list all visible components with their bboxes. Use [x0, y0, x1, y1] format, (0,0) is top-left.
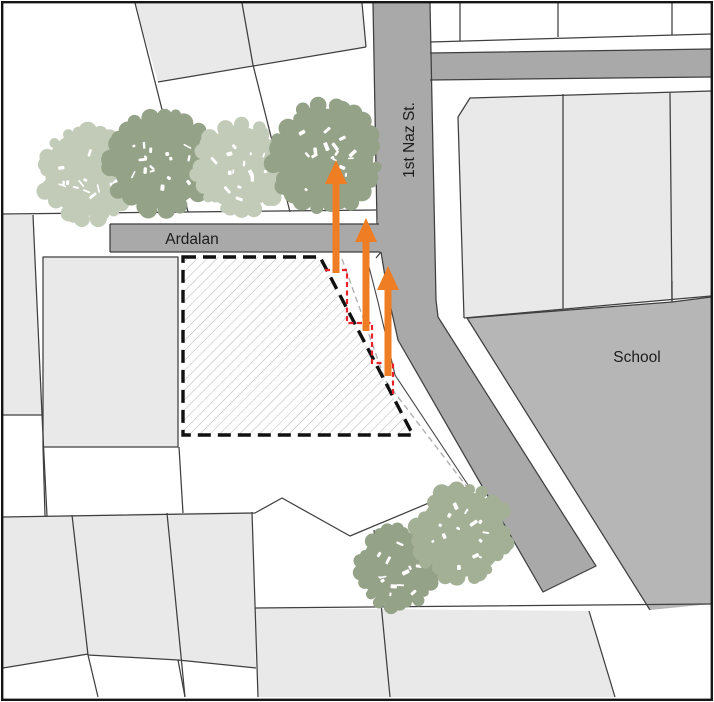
street-top-horizontal	[430, 49, 711, 80]
tree-icon	[264, 97, 382, 214]
parcel	[242, 3, 366, 65]
parcel	[135, 3, 253, 82]
school-label: School	[613, 349, 660, 366]
parcel	[43, 257, 178, 447]
parcel-block-northeast	[458, 91, 711, 318]
site-hatch-fill	[183, 257, 413, 435]
map-canvas: Ardalan 1st Naz St. School	[0, 0, 714, 702]
parcel	[3, 215, 42, 415]
parcel	[255, 608, 615, 697]
site-plan-map: Ardalan 1st Naz St. School	[0, 0, 714, 702]
setback-arrow-up-icon	[325, 160, 347, 273]
parcel	[72, 513, 178, 660]
setback-arrow-up-icon	[355, 218, 377, 331]
street-label-ardalan: Ardalan	[165, 231, 218, 248]
street-label-1st-naz: 1st Naz St.	[401, 102, 418, 178]
